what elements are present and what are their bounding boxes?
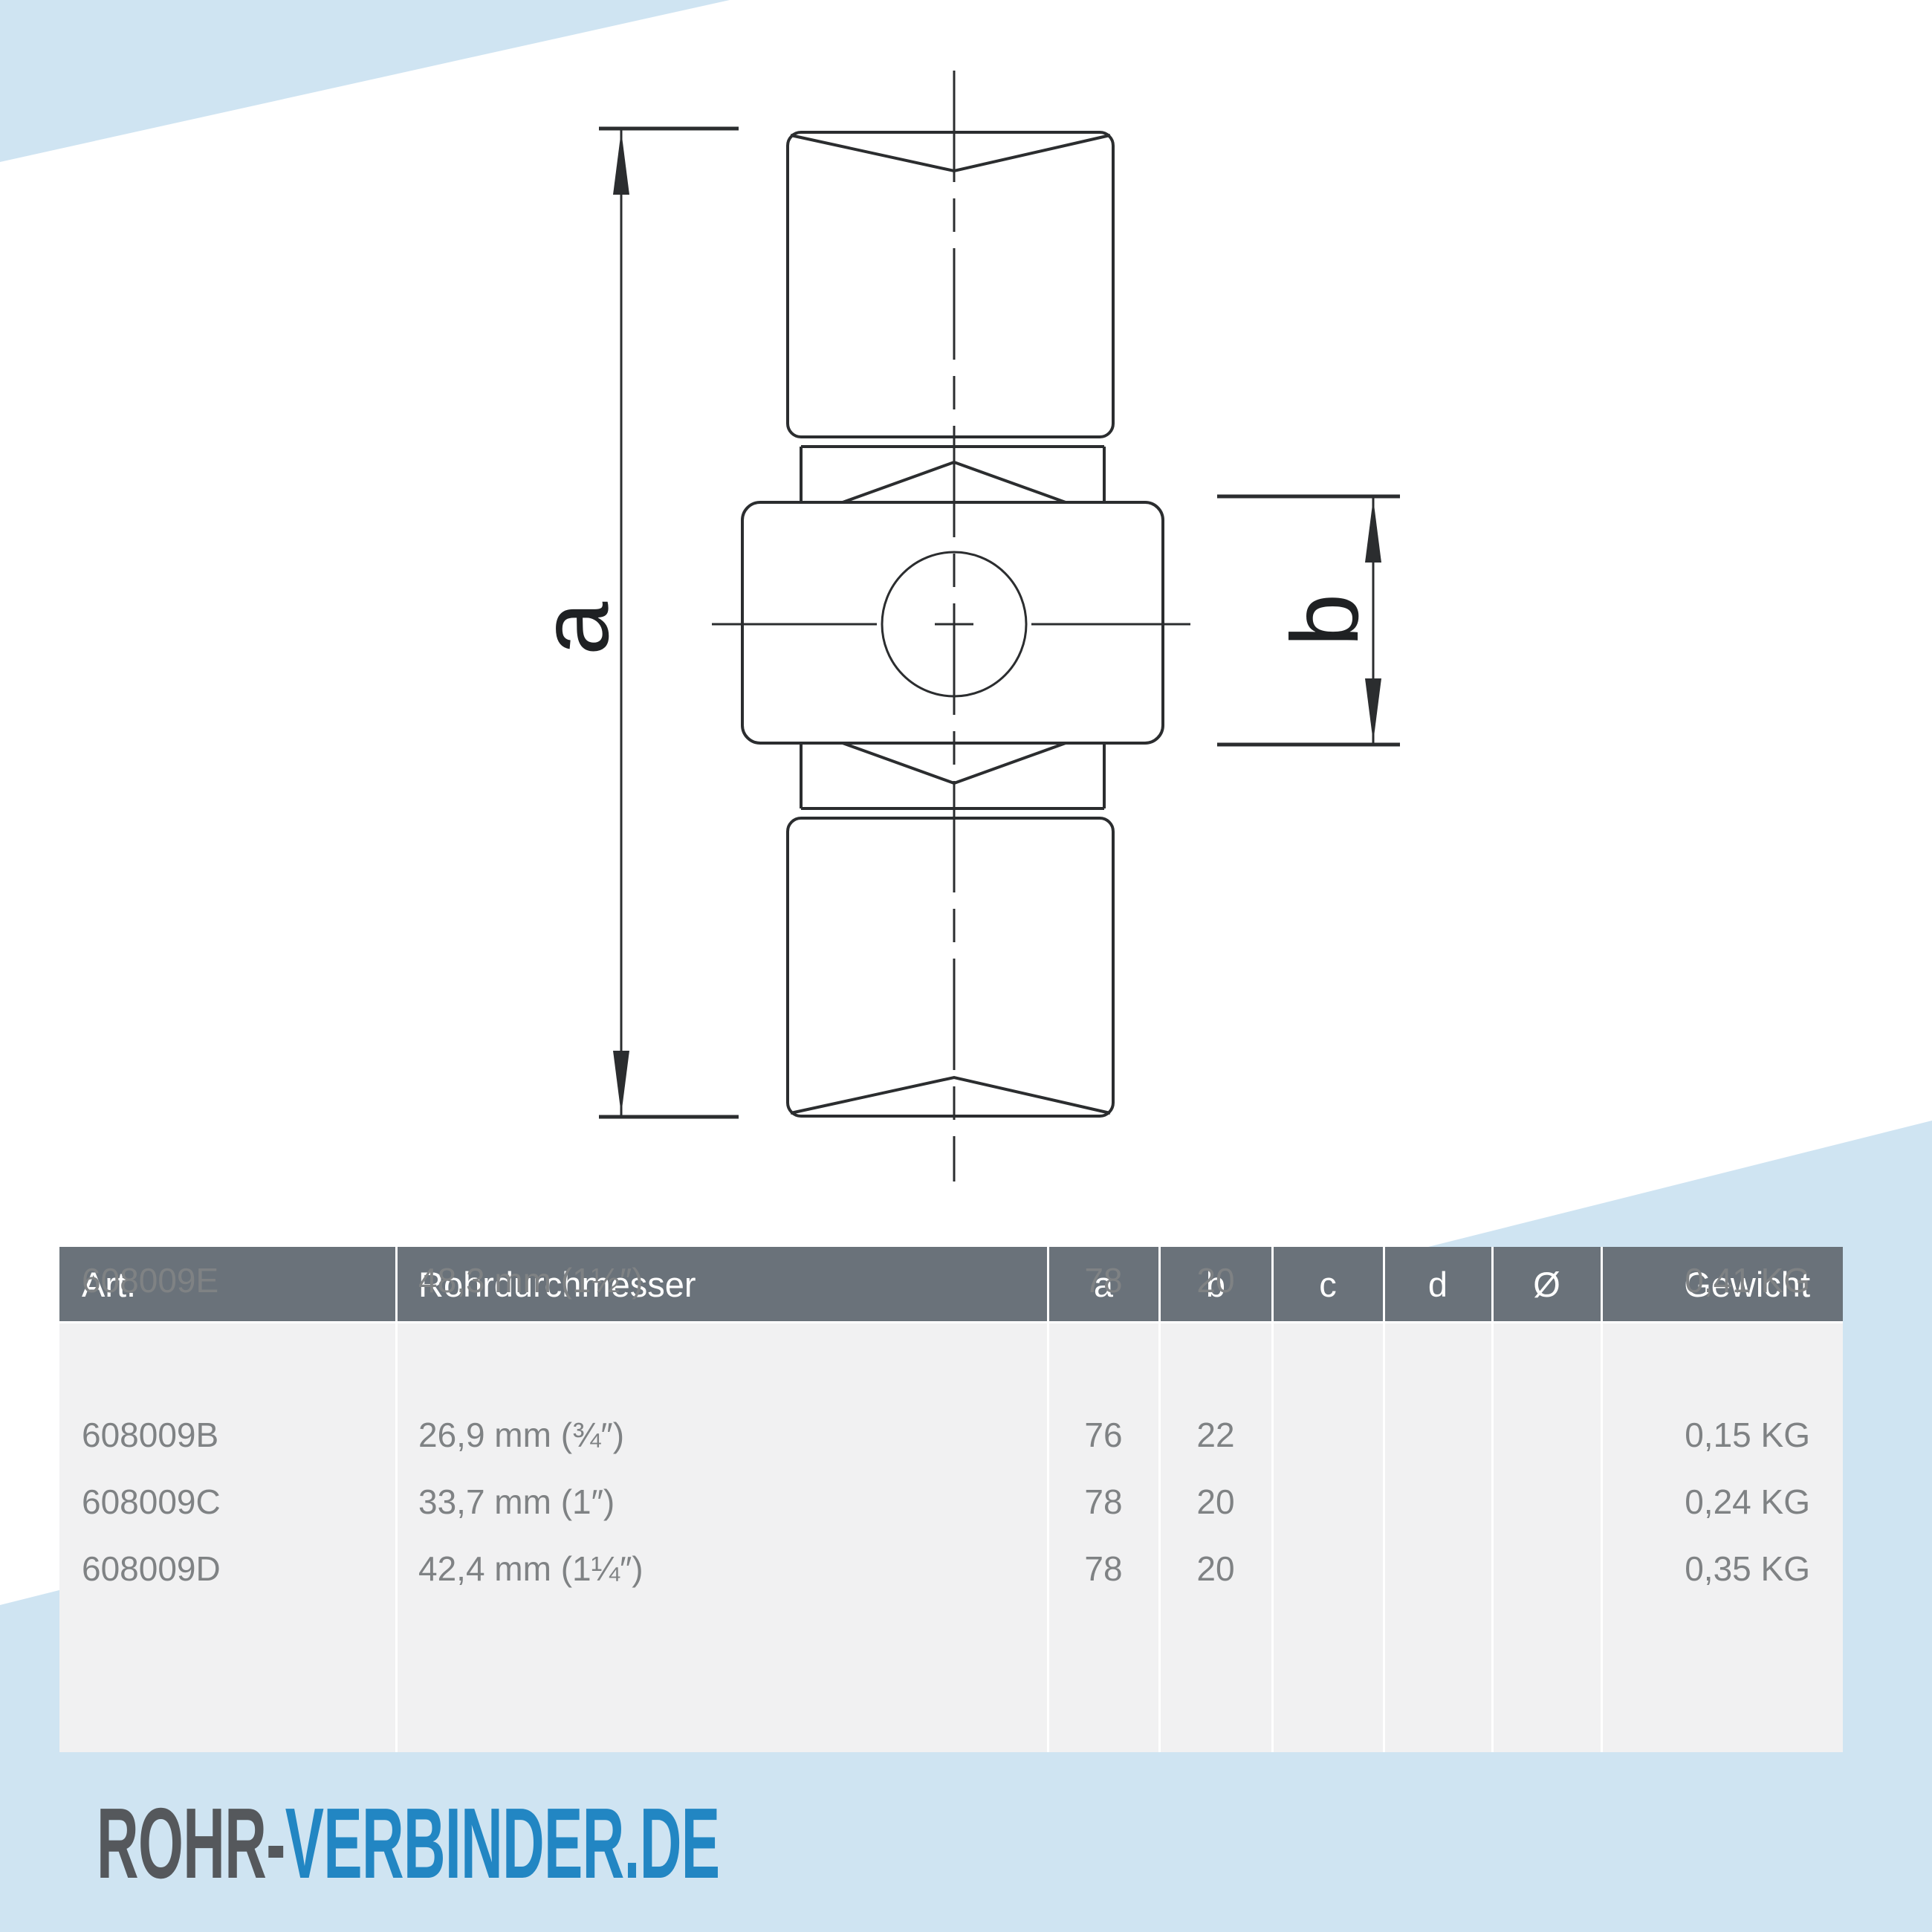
cell-a: 76 (1048, 1401, 1159, 1468)
cell-a: 78 (1048, 1535, 1159, 1602)
cell-a: 78 (1048, 1247, 1159, 1314)
cell-a: 78 (1048, 1468, 1159, 1535)
pipe-top (788, 132, 1113, 502)
cell-o (1492, 1535, 1601, 1602)
cell-weight: 0,15 KG (1601, 1401, 1843, 1468)
cell-diameter: 33,7 mm (1″) (396, 1468, 1048, 1535)
cell-c (1272, 1401, 1384, 1468)
cell-diameter: 48,3 mm (1½″) (396, 1247, 1048, 1314)
table-row: 608009C 33,7 mm (1″) 78 20 0,24 KG (59, 1468, 1843, 1535)
cell-weight: 0,35 KG (1601, 1535, 1843, 1602)
dimension-a: a (520, 129, 739, 1117)
cell-art: 608009C (59, 1468, 396, 1535)
cell-d (1384, 1468, 1492, 1535)
cell-c (1272, 1468, 1384, 1535)
cell-art: 608009B (59, 1401, 396, 1468)
cell-b: 20 (1159, 1535, 1272, 1602)
logo-text-rohr: ROHR- (97, 1787, 285, 1899)
cell-d (1384, 1535, 1492, 1602)
arrow-up-icon (1365, 499, 1381, 563)
cell-art: 608009E (59, 1247, 396, 1314)
cell-b: 22 (1159, 1401, 1272, 1468)
cell-b: 20 (1159, 1468, 1272, 1535)
cell-d (1384, 1401, 1492, 1468)
cell-weight: 0,24 KG (1601, 1468, 1843, 1535)
cell-b: 20 (1159, 1247, 1272, 1314)
dimensions-table: Art. Rohrdurchmesser a b c d Ø Gewicht 6… (59, 1247, 1843, 1752)
cell-diameter: 26,9 mm (¾″) (396, 1401, 1048, 1468)
table-row: 608009B 26,9 mm (¾″) 76 22 0,15 KG (59, 1401, 1843, 1468)
spec-sheet-page: a b Art. Rohrdurchmesser a b c d Ø Gewic… (0, 0, 1932, 1932)
pipe-bottom (788, 743, 1113, 1116)
cell-diameter: 42,4 mm (1¼″) (396, 1535, 1048, 1602)
cell-o (1492, 1468, 1601, 1535)
table-row: 608009D 42,4 mm (1¼″) 78 20 0,35 KG (59, 1535, 1843, 1602)
cell-art: 608009D (59, 1535, 396, 1602)
dim-b-label: b (1272, 594, 1378, 646)
arrow-down-icon (1365, 678, 1381, 742)
cell-o (1492, 1401, 1601, 1468)
site-logo: ROHR-VERBINDER.DE (97, 1793, 719, 1893)
cell-c (1272, 1535, 1384, 1602)
logo-text-verbinder: VERBINDER.DE (285, 1787, 720, 1899)
cell-c (1272, 1247, 1384, 1314)
table-row: 608009E 48,3 mm (1½″) 78 20 0,41 KG (59, 1247, 1843, 1314)
dimension-b: b (1217, 496, 1400, 745)
cell-weight: 0,41 KG (1601, 1247, 1843, 1314)
arrow-up-icon (613, 131, 629, 195)
cell-d (1384, 1247, 1492, 1314)
cell-o (1492, 1247, 1601, 1314)
collar (742, 462, 1163, 783)
header-divider (59, 1321, 1843, 1323)
dim-a-label: a (520, 601, 629, 655)
arrow-down-icon (613, 1051, 629, 1115)
